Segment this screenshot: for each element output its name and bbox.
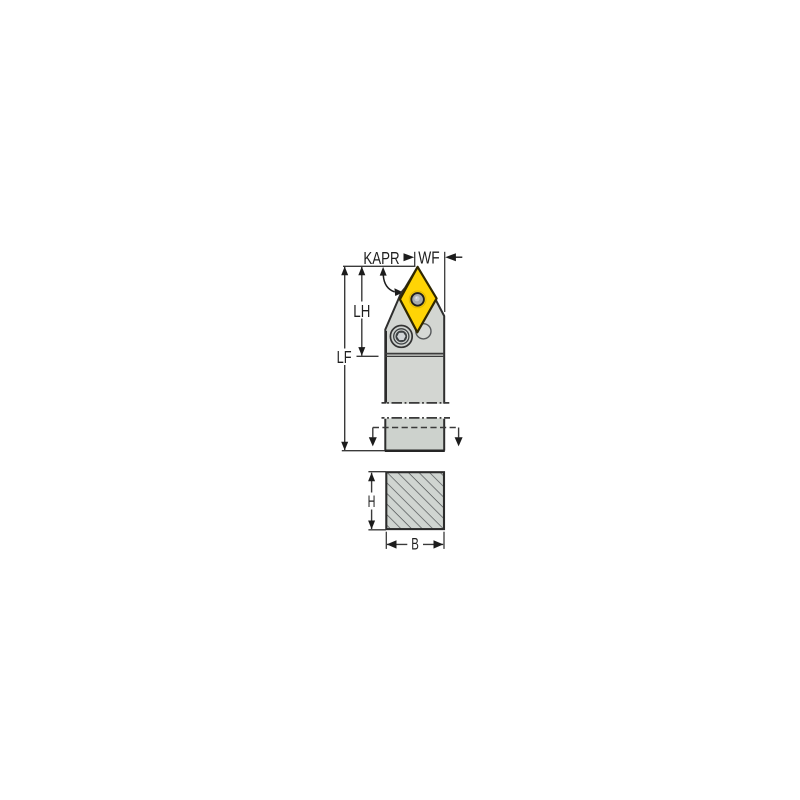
svg-text:LH: LH (353, 301, 370, 321)
svg-text:KAPR: KAPR (363, 248, 399, 268)
svg-text:LF: LF (337, 347, 352, 367)
svg-text:B: B (411, 535, 419, 553)
svg-text:H: H (368, 493, 376, 511)
svg-text:WF: WF (418, 247, 439, 267)
